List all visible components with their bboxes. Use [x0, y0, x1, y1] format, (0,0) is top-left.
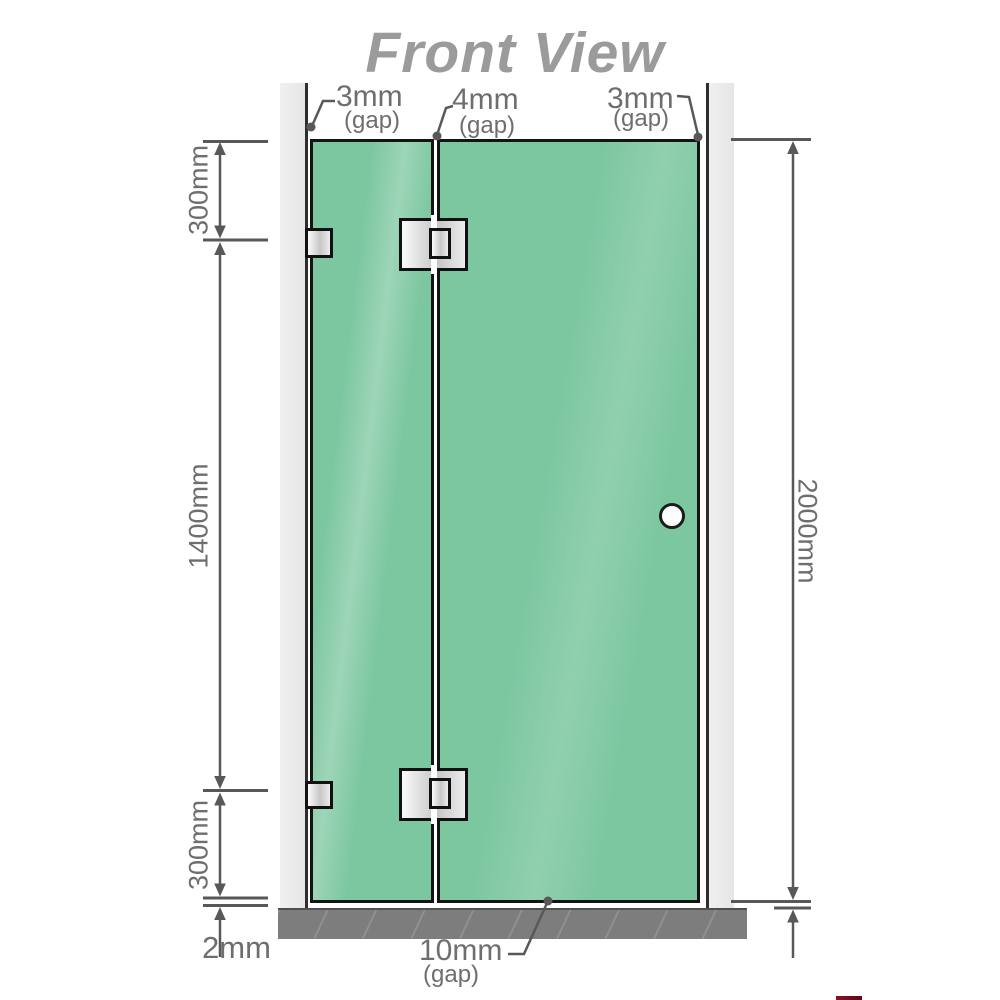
dim-label-2mm: 2mm: [202, 932, 271, 963]
gap-label-bottom-unit: (gap): [423, 963, 479, 987]
floor-base: [278, 908, 747, 939]
dim-label-1400mm: 1400mm: [186, 463, 213, 568]
hinge-top-knuckle-icon: [429, 228, 451, 259]
gap-label-top-right-unit: (gap): [613, 107, 669, 131]
right-wall: [706, 83, 734, 908]
hinge-bottom-knuckle-icon: [429, 778, 451, 809]
dim-label-300mm-top: 300mm: [186, 145, 213, 235]
wall-bracket-top-icon: [305, 228, 333, 258]
dim-label-300mm-bottom: 300mm: [186, 800, 213, 890]
wall-bracket-bottom-icon: [305, 781, 333, 809]
door-handle-icon: [659, 503, 685, 529]
front-view-diagram: Front View: [0, 0, 1000, 1000]
gap-label-top-middle-value: 4mm: [452, 85, 519, 115]
left-wall: [280, 83, 308, 908]
diagram-title: Front View: [365, 20, 664, 86]
gap-label-top-middle-unit: (gap): [459, 114, 515, 138]
gap-label-top-left-unit: (gap): [344, 109, 400, 133]
dim-label-2000mm: 2000mm: [794, 478, 821, 583]
red-artifact-mark: [836, 996, 862, 1000]
